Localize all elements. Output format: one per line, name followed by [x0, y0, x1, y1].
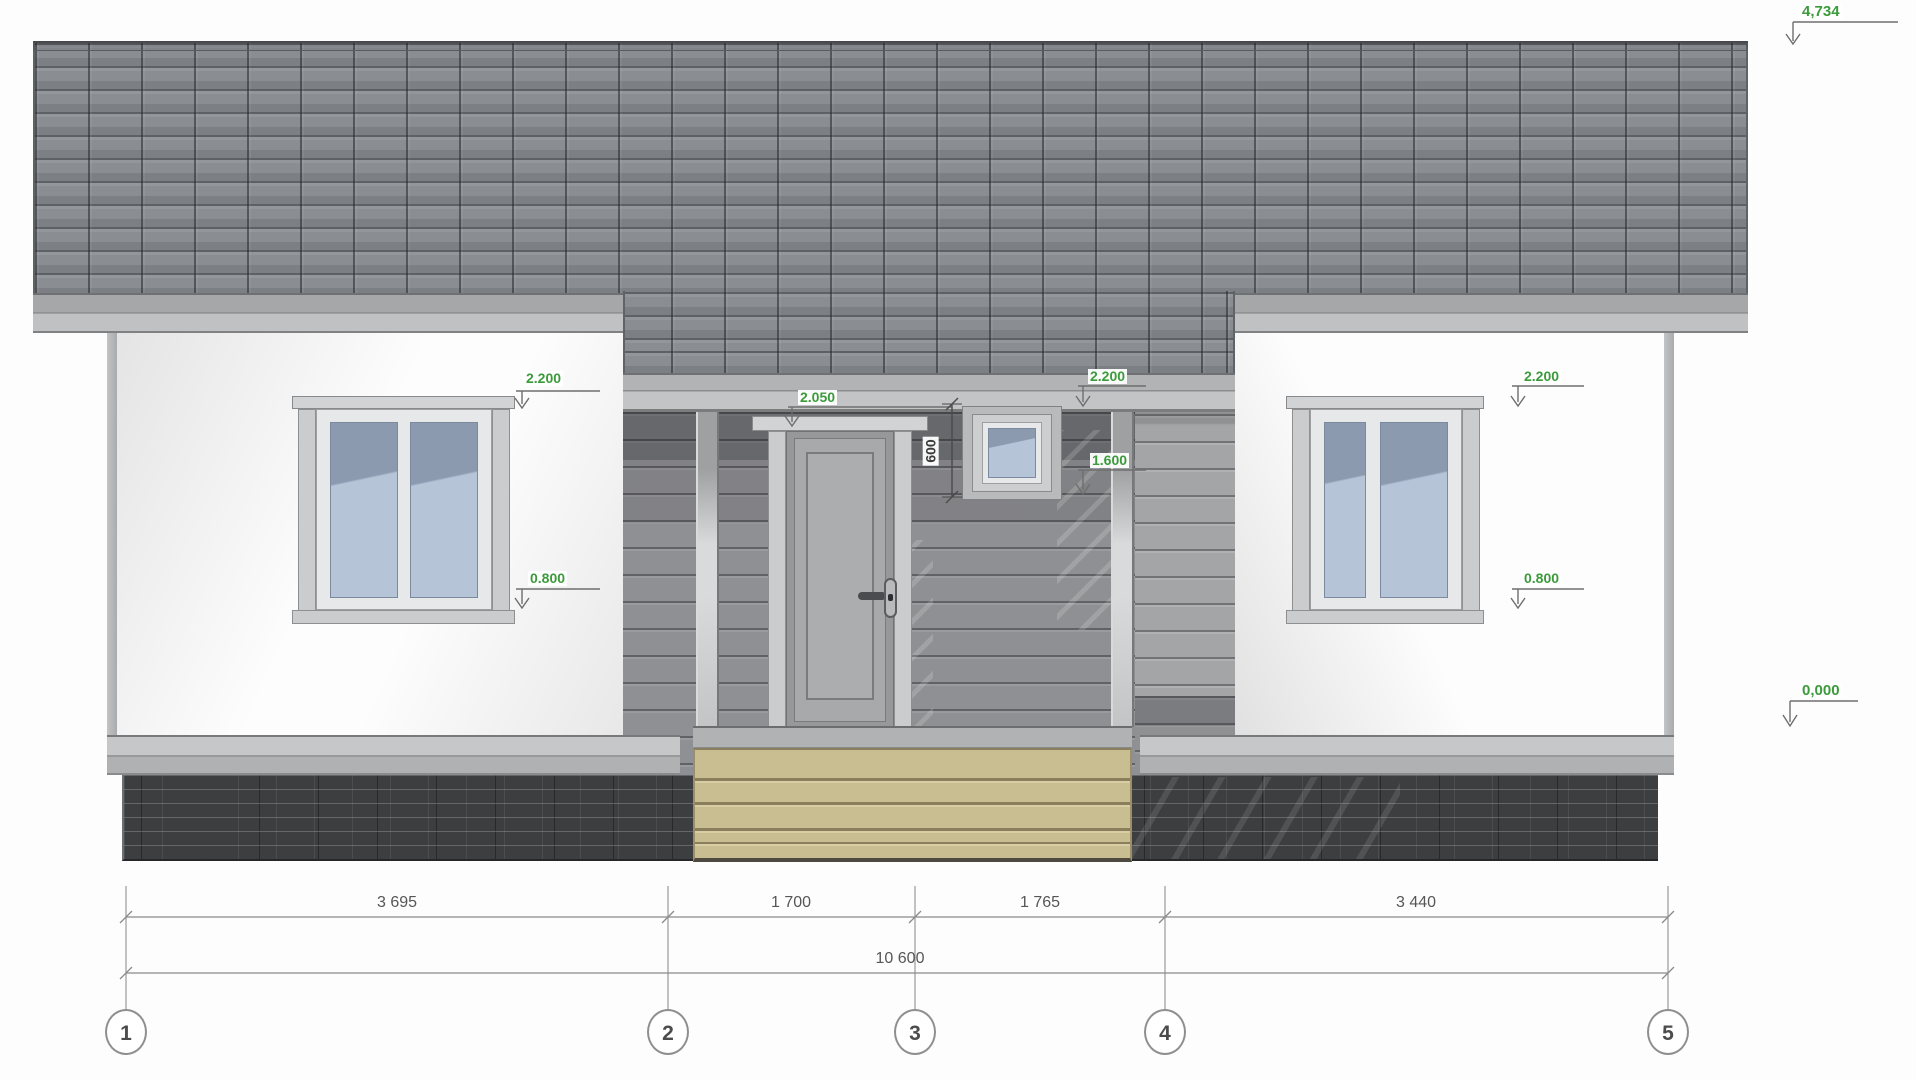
dim-label-small-window-height: 600	[923, 436, 939, 465]
level-label-window-right-sill: 0.800	[1522, 571, 1561, 586]
level-label-roof-peak: 4,734	[1800, 4, 1842, 19]
level-label-small-window-head: 2.200	[1088, 369, 1127, 384]
grid-bubble-2: 2	[647, 1009, 689, 1055]
level-label-window-left-sill: 0.800	[528, 571, 567, 586]
dim-label-segment-3: 1 765	[1020, 895, 1060, 911]
grid-bubble-5: 5	[1647, 1009, 1689, 1055]
level-label-window-right-head: 2.200	[1522, 369, 1561, 384]
grid-bubble-4: 4	[1144, 1009, 1186, 1055]
dim-label-total: 10 600	[876, 951, 925, 967]
grid-bubble-3: 3	[894, 1009, 936, 1055]
level-label-small-window-sill: 1.600	[1090, 453, 1129, 468]
grid-bubble-1: 1	[105, 1009, 147, 1055]
elevation-drawing: 4,734 0,000 2.200 2.050 2.200 1.600 0.80…	[0, 0, 1916, 1080]
level-label-door-head: 2.050	[798, 390, 837, 405]
level-marker-arrow-icons	[515, 22, 1898, 726]
dim-label-segment-1: 3 695	[377, 895, 417, 911]
level-label-ground: 0,000	[1800, 683, 1842, 698]
dim-label-segment-4: 3 440	[1396, 895, 1436, 911]
dim-label-segment-2: 1 700	[771, 895, 811, 911]
dim-600-line	[942, 398, 962, 503]
grid-extension-lines	[126, 886, 1668, 1009]
level-label-window-left-head: 2.200	[524, 371, 563, 386]
dimension-lines	[120, 911, 1674, 979]
annotation-linework	[0, 0, 1916, 1080]
